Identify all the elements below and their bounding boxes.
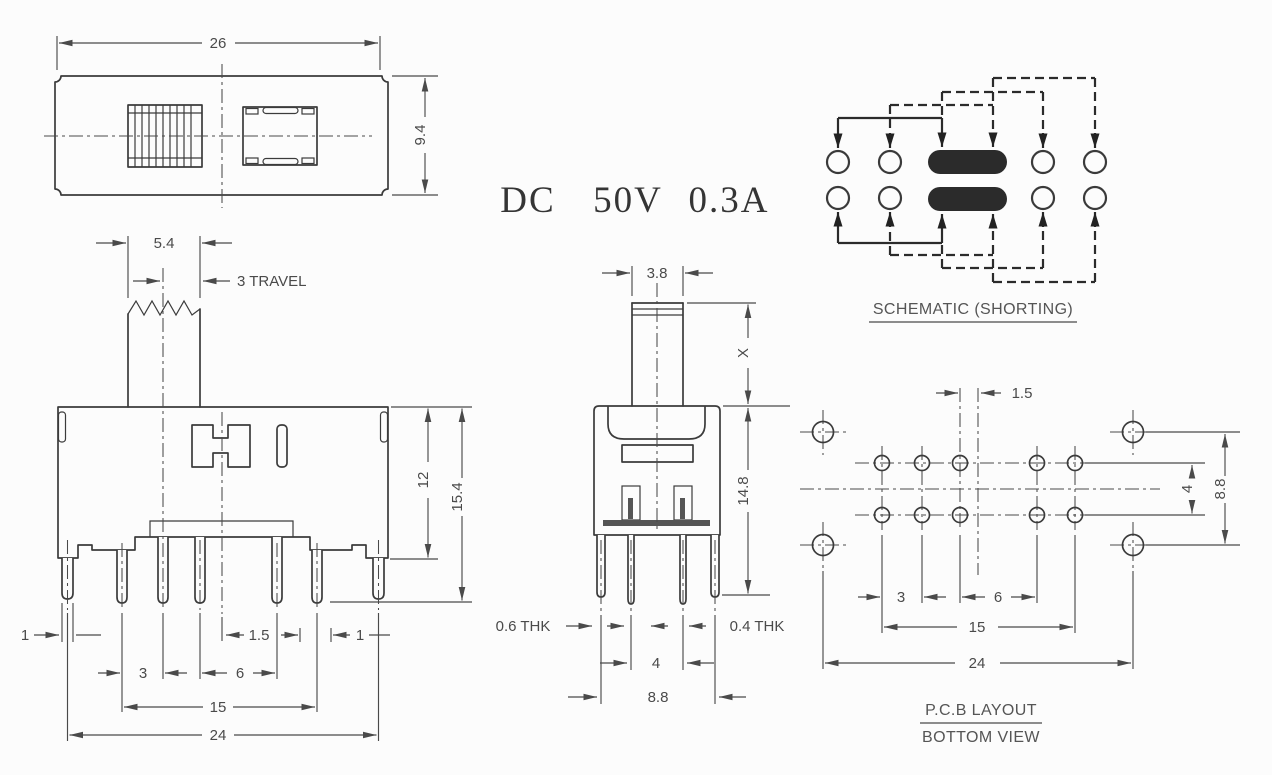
front-view-body — [58, 407, 388, 558]
dim-label-travel: 3 TRAVEL — [237, 273, 306, 290]
schematic-title: SCHEMATIC (SHORTING) — [873, 301, 1073, 318]
dim-label-side-4: 4 — [652, 655, 660, 672]
top-view: 26 9.4 — [44, 35, 438, 208]
dim-side-heights: X 14.8 — [687, 303, 790, 595]
front-view-notch-left — [59, 412, 66, 442]
side-view-centerlines — [601, 283, 715, 704]
dim-label-pcb-6: 6 — [994, 589, 1002, 606]
dim-label-3: 3 — [139, 665, 147, 682]
dim-label-x: X — [735, 348, 752, 358]
rating-current: 0.3A — [689, 180, 770, 221]
dim-label-26: 26 — [210, 35, 227, 52]
dim-thickness: 0.6 THK 0.4 THK — [496, 618, 785, 635]
side-view: 3.8 X 14.8 0.6 THK 0.4 THK 4 — [496, 265, 790, 706]
dim-label-24: 24 — [210, 727, 227, 744]
pcb-centerlines — [800, 388, 1160, 575]
side-view-pins — [597, 535, 719, 604]
dim-label-pcb-1.5: 1.5 — [1012, 385, 1033, 402]
dim-pcb-rows: 4 8.8 — [1179, 434, 1229, 544]
front-view: 5.4 3 TRAVEL 12 15.4 1 1.5 — [21, 235, 472, 744]
dim-knob-width: 5.4 — [96, 235, 232, 298]
dim-label-3.8: 3.8 — [647, 265, 668, 282]
dim-label-15: 15 — [210, 699, 227, 716]
front-view-h-cutout — [192, 425, 250, 467]
dim-top-width: 26 — [57, 35, 380, 70]
dim-label-side-8.8: 8.8 — [648, 689, 669, 706]
dim-label-0.4thk: 0.4 THK — [730, 618, 785, 635]
dim-label-pcb-24: 24 — [969, 655, 986, 672]
dim-top-height: 9.4 — [392, 76, 438, 195]
schematic-shorting-bar-bottom — [928, 187, 1007, 211]
dim-label-pcb-3: 3 — [897, 589, 905, 606]
front-view-clips — [62, 558, 384, 599]
front-view-centerlines — [68, 268, 379, 614]
dim-label-pcb-15: 15 — [969, 619, 986, 636]
dim-pcb-offset: 1.5 — [936, 385, 1032, 402]
front-view-extensions — [62, 603, 379, 741]
front-view-notch-right — [381, 412, 388, 442]
dim-label-pcb-4: 4 — [1179, 485, 1196, 493]
rating-voltage: 50V — [593, 180, 663, 221]
dim-label-15.4: 15.4 — [449, 482, 466, 511]
dim-label-right-1: 1 — [356, 627, 364, 644]
dim-label-left-1: 1 — [21, 627, 29, 644]
dim-label-9.4: 9.4 — [412, 125, 429, 146]
dim-front-heights: 12 15.4 — [330, 407, 472, 602]
rating-text: DC 50V 0.3A — [500, 180, 769, 221]
dim-pcb-bottom: 3 6 15 24 — [825, 589, 1131, 672]
slide-switch-drawing: 26 9.4 DC 50V 0.3A — [0, 0, 1272, 775]
dim-label-pcb-8.8: 8.8 — [1212, 479, 1229, 500]
engineering-drawing-page: 26 9.4 DC 50V 0.3A — [0, 0, 1272, 775]
dim-label-5.4: 5.4 — [154, 235, 175, 252]
dim-front-bottom: 1 1.5 1 3 6 15 24 — [21, 627, 390, 744]
dim-side-bottom: 4 8.8 — [568, 655, 746, 706]
pcb-layout: 1.5 4 8.8 3 6 15 24 P.C.B LAYOUT — [800, 385, 1240, 746]
pcb-subtitle: BOTTOM VIEW — [922, 729, 1040, 746]
dim-travel: 3 TRAVEL — [133, 273, 306, 290]
dim-label-6: 6 — [236, 665, 244, 682]
dim-label-0.6thk: 0.6 THK — [496, 618, 551, 635]
schematic: SCHEMATIC (SHORTING) — [827, 78, 1106, 322]
dim-label-14.8: 14.8 — [735, 476, 752, 505]
front-view-slot — [277, 425, 287, 467]
schematic-shorting-bar-top — [928, 150, 1007, 174]
dim-label-1.5: 1.5 — [249, 627, 270, 644]
pcb-title: P.C.B LAYOUT — [925, 702, 1037, 719]
front-view-knob — [128, 301, 200, 407]
dim-label-12: 12 — [415, 472, 432, 489]
front-view-pins — [117, 537, 322, 603]
rating-dc: DC — [500, 180, 555, 221]
